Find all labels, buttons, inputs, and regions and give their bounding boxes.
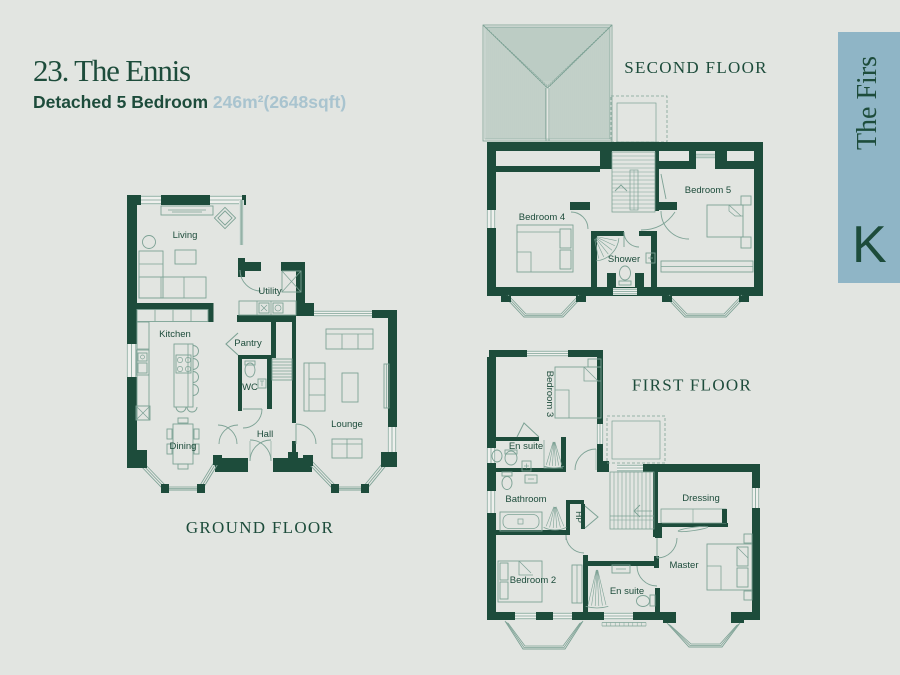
svg-text:En suite: En suite — [610, 586, 644, 597]
svg-text:En suite: En suite — [509, 441, 543, 452]
svg-text:WC: WC — [242, 382, 258, 393]
svg-text:Bedroom 2: Bedroom 2 — [510, 575, 556, 586]
svg-text:Utility: Utility — [258, 286, 281, 297]
svg-text:Bathroom: Bathroom — [505, 494, 546, 505]
svg-text:Lounge: Lounge — [331, 419, 363, 430]
svg-text:FIRST FLOOR: FIRST FLOOR — [632, 376, 752, 395]
svg-text:Hall: Hall — [257, 429, 273, 440]
svg-text:Master: Master — [669, 560, 698, 571]
svg-text:Dressing: Dressing — [682, 493, 720, 504]
svg-text:HP: HP — [574, 511, 584, 523]
svg-text:SECOND FLOOR: SECOND FLOOR — [624, 58, 768, 77]
svg-text:Pantry: Pantry — [234, 338, 262, 349]
svg-text:Bedroom 4: Bedroom 4 — [519, 212, 565, 223]
svg-text:Dining: Dining — [170, 441, 197, 452]
svg-text:Kitchen: Kitchen — [159, 329, 191, 340]
svg-text:Shower: Shower — [608, 254, 640, 265]
svg-text:Bedroom 5: Bedroom 5 — [685, 185, 731, 196]
svg-text:Living: Living — [173, 230, 198, 241]
svg-text:GROUND FLOOR: GROUND FLOOR — [186, 518, 334, 537]
svg-text:Bedroom 3: Bedroom 3 — [544, 371, 555, 417]
